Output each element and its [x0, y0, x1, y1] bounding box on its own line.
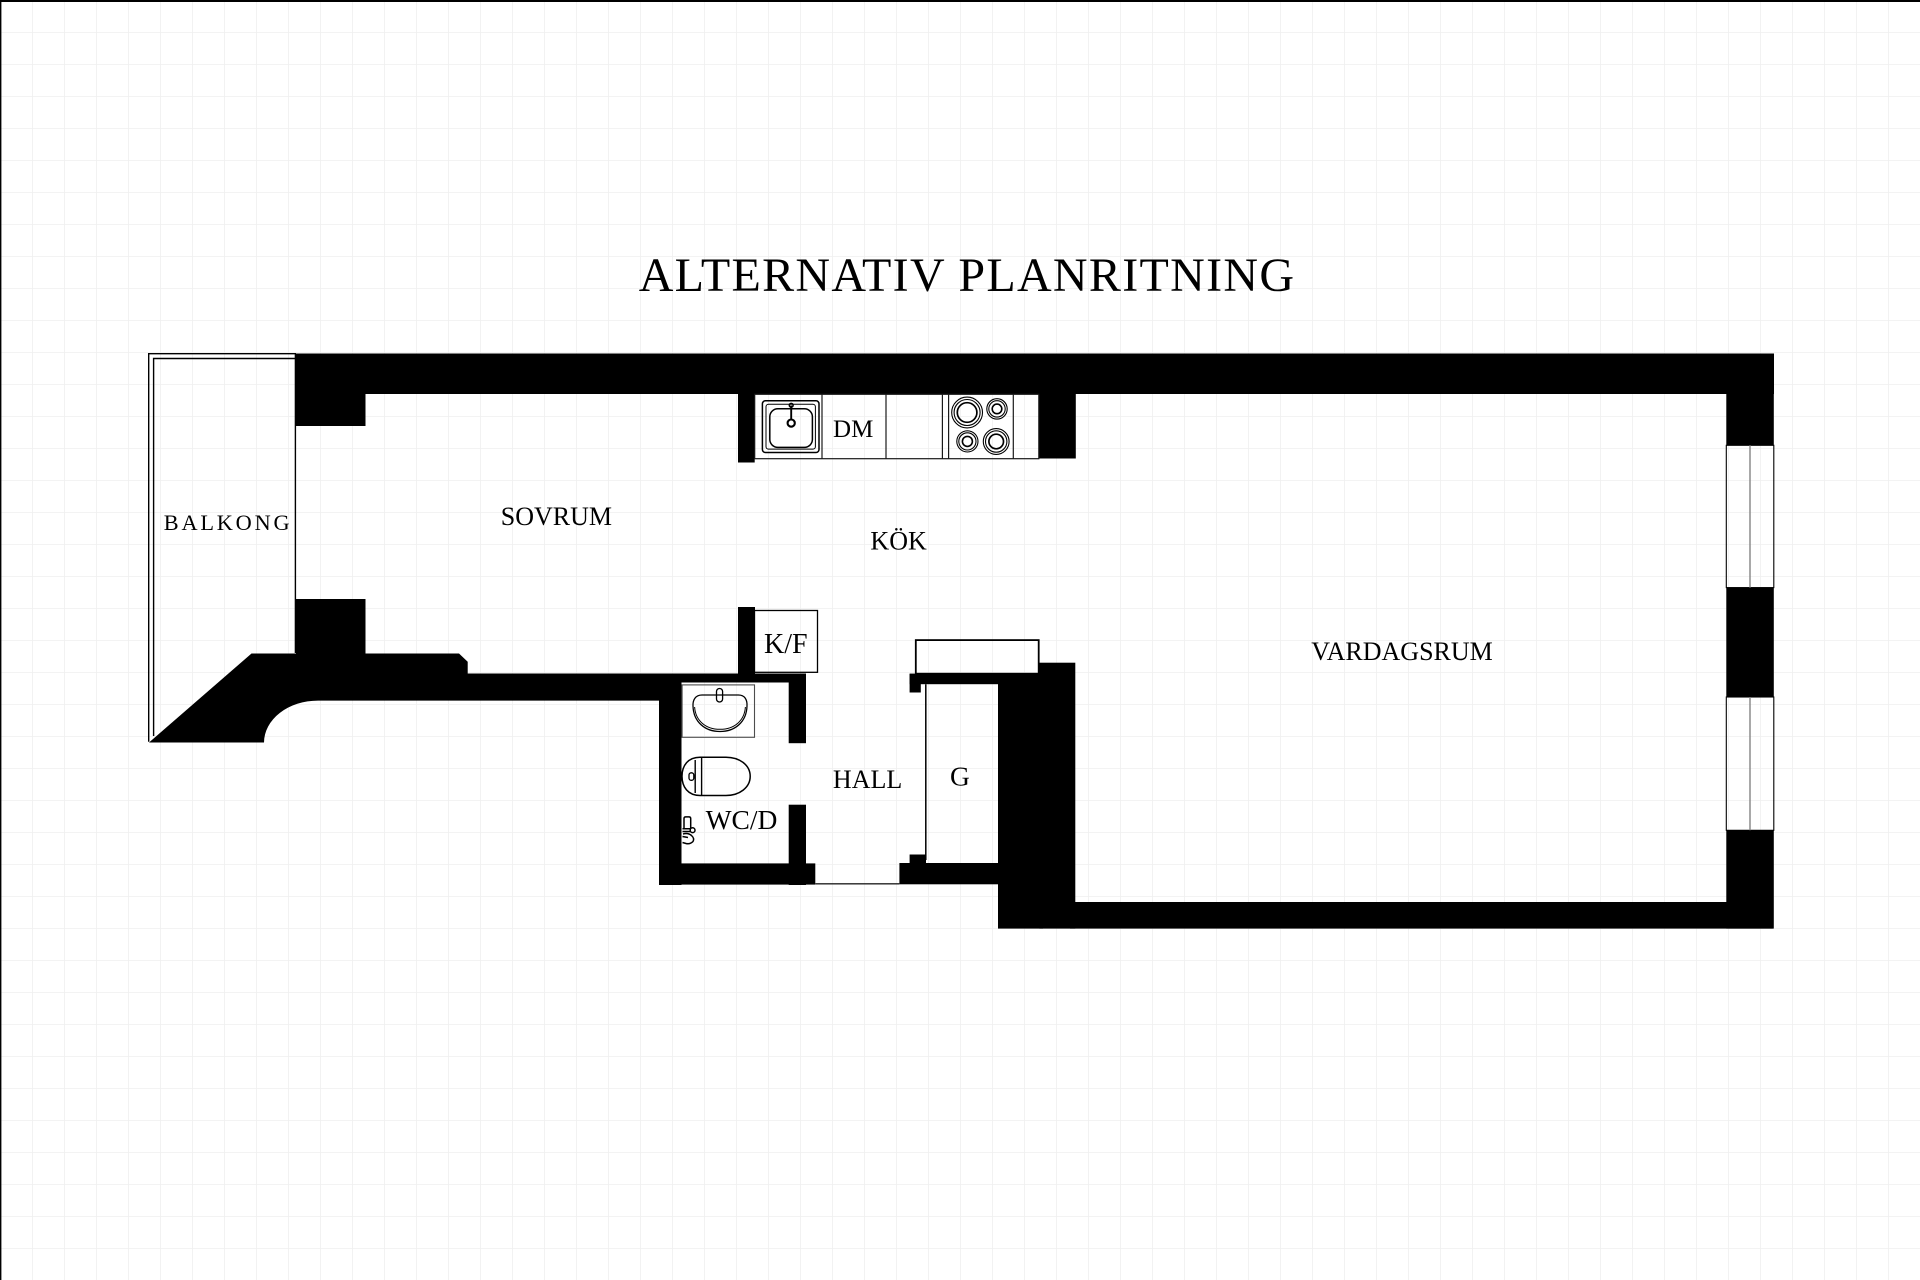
svg-text:HALL: HALL	[833, 765, 902, 794]
svg-text:ALTERNATIV PLANRITNING: ALTERNATIV PLANRITNING	[639, 249, 1296, 302]
svg-text:SOVRUM: SOVRUM	[501, 502, 612, 531]
svg-text:BALKONG: BALKONG	[164, 510, 293, 535]
svg-text:VARDAGSRUM: VARDAGSRUM	[1311, 637, 1493, 666]
svg-text:K/F: K/F	[764, 629, 808, 660]
svg-text:DM: DM	[833, 416, 873, 443]
svg-text:WC/D: WC/D	[706, 804, 778, 835]
svg-text:KÖK: KÖK	[870, 526, 927, 555]
svg-text:G: G	[950, 761, 970, 792]
